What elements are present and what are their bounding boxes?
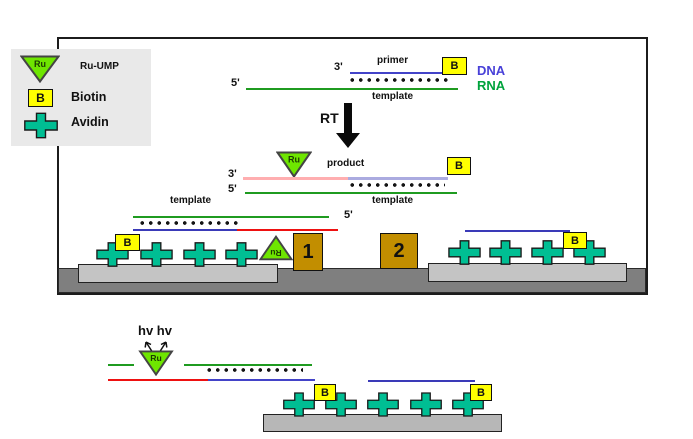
top-five-prime-label: 5' — [231, 78, 240, 89]
basepair-dots — [348, 183, 445, 187]
detection-biotin-tag-2: B — [470, 384, 492, 401]
rt-label: RT — [320, 111, 339, 125]
product-biotin-tag: B — [447, 157, 471, 175]
legend-biotin-label: Biotin — [71, 91, 106, 104]
basepair-dots — [138, 221, 238, 225]
top-template-label: template — [372, 92, 413, 102]
dna-label: DNA — [477, 64, 505, 77]
avidin-icon — [448, 240, 481, 265]
product-strand-pink-line — [243, 177, 348, 180]
left-template-label: template — [170, 196, 211, 206]
captured-strand-blue-line — [133, 229, 237, 231]
template-strand-line — [184, 364, 312, 366]
product-strand-lavender-line — [348, 177, 448, 180]
right-biotin-tag: B — [563, 232, 587, 249]
ru-ump-icon: Ru — [20, 55, 60, 83]
avidin-icon — [489, 240, 522, 265]
captured-strand-red-line — [237, 229, 338, 231]
avidin-icon — [410, 392, 442, 417]
product-strand-blue-line — [208, 379, 315, 381]
legend-ru-ump-label: Ru-UMP — [80, 62, 119, 72]
basepair-dots — [205, 368, 303, 372]
avidin-icon — [225, 242, 258, 267]
biotin-symbol: B — [451, 60, 459, 72]
avidin-icon — [24, 112, 58, 139]
left-biotin-tag: B — [115, 234, 140, 251]
ru-ump-tag: Ru — [276, 151, 312, 178]
rt-arrow — [344, 103, 352, 134]
product-three-prime-label: 3' — [228, 169, 237, 180]
hv-label: hv hv — [138, 324, 172, 337]
biotin-symbol: B — [124, 237, 132, 249]
product-template-label: template — [372, 196, 413, 206]
biotin-symbol: B — [477, 387, 485, 399]
top-biotin-tag: B — [442, 57, 467, 75]
avidin-icon — [183, 242, 216, 267]
ru-symbol: Ru — [150, 353, 162, 363]
ru-ump-tag: Ru — [259, 235, 293, 261]
template-strand-line — [108, 364, 134, 366]
biotin-symbol: B — [36, 91, 45, 105]
product-strand-red-line — [108, 379, 208, 381]
product-five-prime-label: 5' — [228, 184, 237, 195]
electrode-1: 1 — [293, 233, 323, 271]
electrode-2: 2 — [380, 233, 418, 269]
avidin-icon — [283, 392, 315, 417]
electrode-2-label: 2 — [393, 240, 404, 263]
biotin-symbol: B — [571, 235, 579, 247]
ru-symbol: Ru — [34, 59, 46, 69]
capture-platform-right — [428, 263, 627, 282]
captured-strand-blue-line — [368, 380, 475, 382]
top-three-prime-label: 3' — [334, 62, 343, 73]
template-strand-line — [246, 88, 458, 90]
ru-ump-tag: Ru — [138, 350, 174, 376]
template-strand-line — [133, 216, 329, 218]
biotin-symbol: B — [455, 160, 463, 172]
basepair-dots — [348, 78, 448, 82]
legend-avidin-label: Avidin — [71, 116, 109, 129]
template-strand-line — [245, 192, 457, 194]
captured-strand-blue-line — [465, 230, 570, 232]
rna-label: RNA — [477, 79, 505, 92]
avidin-icon — [367, 392, 399, 417]
left-five-prime-label: 5' — [344, 210, 353, 221]
ru-symbol: Ru — [270, 248, 281, 258]
avidin-icon — [531, 240, 564, 265]
figure-canvas: Ru Ru-UMP B Biotin Avidin 3' primer B 5'… — [0, 0, 693, 439]
detection-biotin-tag-1: B — [314, 384, 336, 401]
biotin-icon: B — [28, 89, 53, 107]
rt-arrowhead-icon — [336, 133, 360, 148]
biotin-symbol: B — [321, 387, 329, 399]
ru-symbol: Ru — [288, 155, 300, 165]
primer-label: primer — [377, 56, 408, 66]
electrode-1-label: 1 — [302, 241, 313, 264]
avidin-icon — [140, 242, 173, 267]
product-label: product — [327, 159, 364, 169]
